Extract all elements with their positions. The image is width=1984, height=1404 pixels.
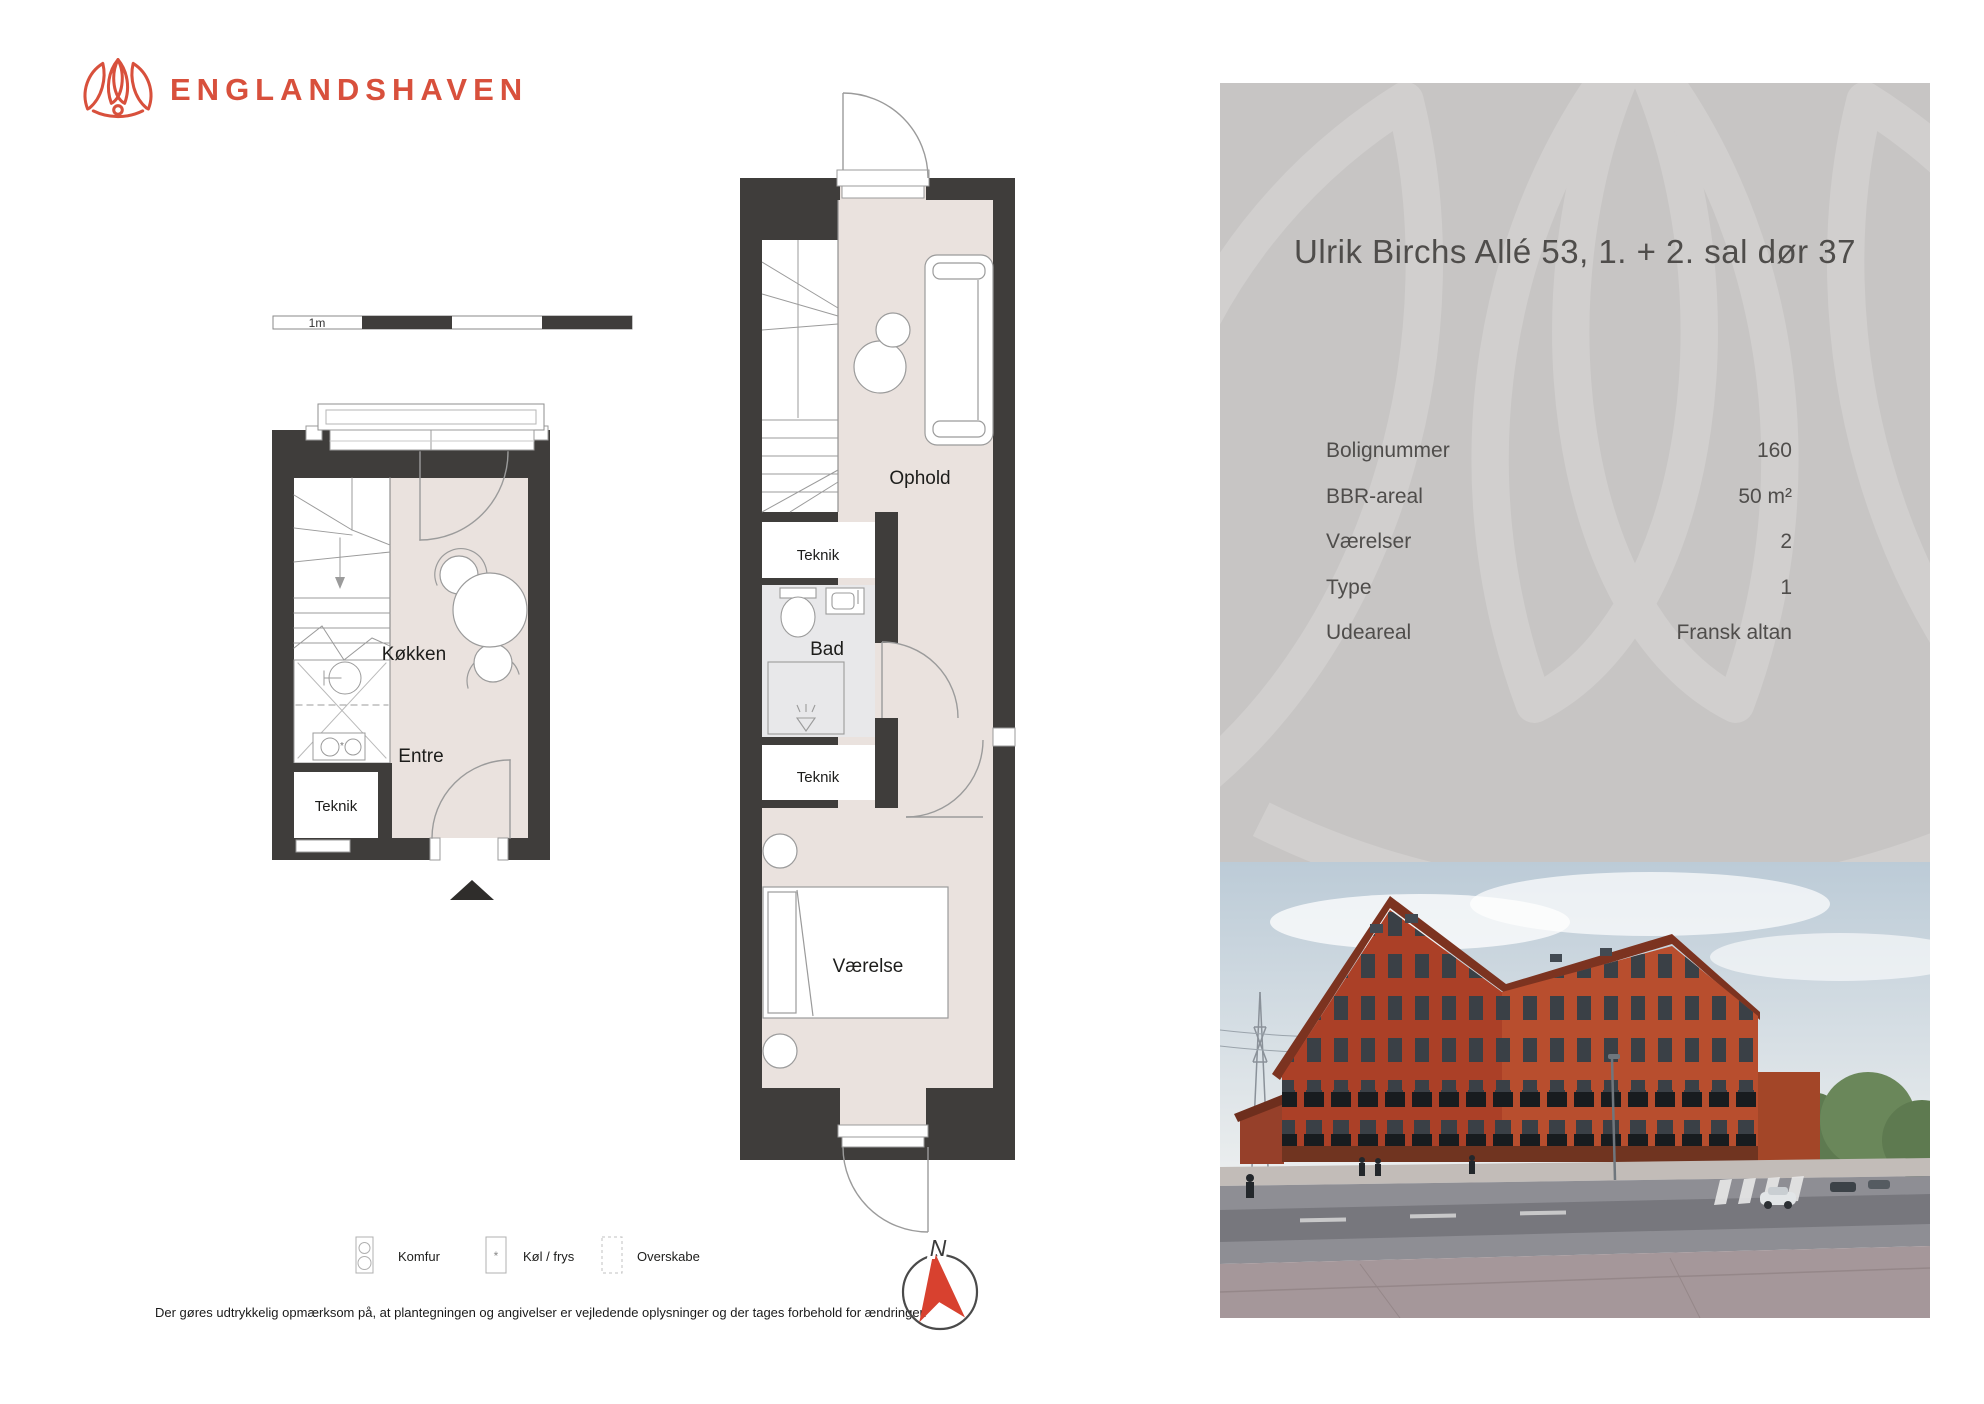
building-photo — [1220, 862, 1930, 1318]
fact-value: 160 — [1757, 439, 1792, 485]
window-top — [306, 404, 548, 450]
label-bath: Bad — [810, 639, 844, 660]
apartment-title: Ulrik Birchs Allé 53, 1. + 2. sal dør 37 — [1220, 233, 1930, 271]
fact-row: Udeareal Fransk altan — [1326, 621, 1792, 667]
legend-cabinets-label: Overskabe — [637, 1249, 700, 1264]
compass-north-label: N — [930, 1235, 947, 1261]
fact-value: 2 — [1780, 530, 1792, 576]
fact-value: 1 — [1780, 576, 1792, 622]
label-tech-lower-plan: Teknik — [315, 798, 358, 815]
fact-row: BBR-areal 50 m² — [1326, 485, 1792, 531]
scale-label: 1m — [309, 316, 326, 330]
label-kitchen: Køkken — [382, 644, 446, 665]
fact-row: Type 1 — [1326, 576, 1792, 622]
fact-label: Værelser — [1326, 530, 1411, 576]
fact-row: Bolignummer 160 — [1326, 439, 1792, 485]
legend-fridge-symbol: * — [494, 1249, 499, 1263]
entrance-marker — [450, 880, 494, 900]
scale-bar: 1m — [273, 316, 632, 330]
floor-plans: 1m — [0, 0, 1100, 1404]
legend: Komfur * Køl / frys Overskabe — [356, 1237, 700, 1273]
apartment-facts: Bolignummer 160 BBR-areal 50 m² Værelser… — [1326, 439, 1792, 667]
balcony-door-upper — [837, 93, 929, 202]
floorplan-sheet: ENGLANDSHAVEN 1m — [0, 0, 1984, 1404]
info-panel: Ulrik Birchs Allé 53, 1. + 2. sal dør 37… — [1220, 83, 1930, 862]
label-tech-upper: Teknik — [797, 547, 840, 564]
cabinets-icon — [602, 1237, 622, 1273]
fact-label: BBR-areal — [1326, 485, 1423, 531]
legend-fridge-label: Køl / frys — [523, 1249, 575, 1264]
disclaimer-text: Der gøres udtrykkelig opmærksom på, at p… — [155, 1305, 927, 1320]
legend-stove-label: Komfur — [398, 1249, 441, 1264]
fact-row: Værelser 2 — [1326, 530, 1792, 576]
fridge-symbol: * — [340, 741, 344, 752]
label-tech-lower: Teknik — [797, 769, 840, 786]
floor-plan-upper: Ophold Teknik Bad Teknik Værelse — [740, 93, 1015, 1232]
label-living: Ophold — [889, 468, 950, 489]
floor-plan-lower: * — [272, 404, 550, 900]
fact-label: Bolignummer — [1326, 439, 1450, 485]
fact-value: Fransk altan — [1676, 621, 1792, 667]
label-entry: Entre — [398, 746, 443, 767]
fact-label: Udeareal — [1326, 621, 1411, 667]
fact-value: 50 m² — [1738, 485, 1792, 531]
wall-niche — [993, 728, 1015, 746]
stove-icon — [356, 1237, 373, 1273]
label-bedroom: Værelse — [833, 956, 904, 977]
fact-label: Type — [1326, 576, 1372, 622]
